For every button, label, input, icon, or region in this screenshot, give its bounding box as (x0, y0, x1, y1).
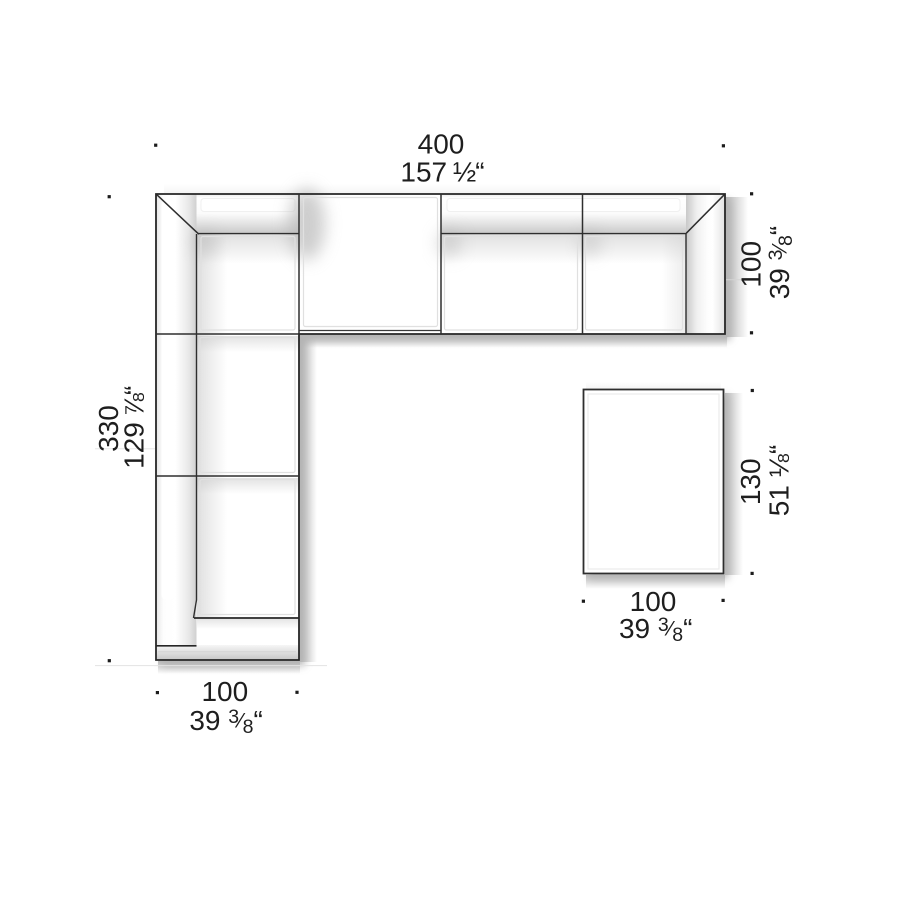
svg-text:157 ½“: 157 ½“ (400, 156, 484, 187)
svg-text:100: 100 (201, 676, 248, 707)
svg-text:129 ⅞“: 129 ⅞“ (119, 386, 150, 469)
svg-text:51 ⅛“: 51 ⅛“ (764, 445, 795, 517)
svg-text:130: 130 (735, 458, 766, 505)
svg-text:100: 100 (736, 241, 767, 288)
svg-text:400: 400 (418, 128, 465, 159)
